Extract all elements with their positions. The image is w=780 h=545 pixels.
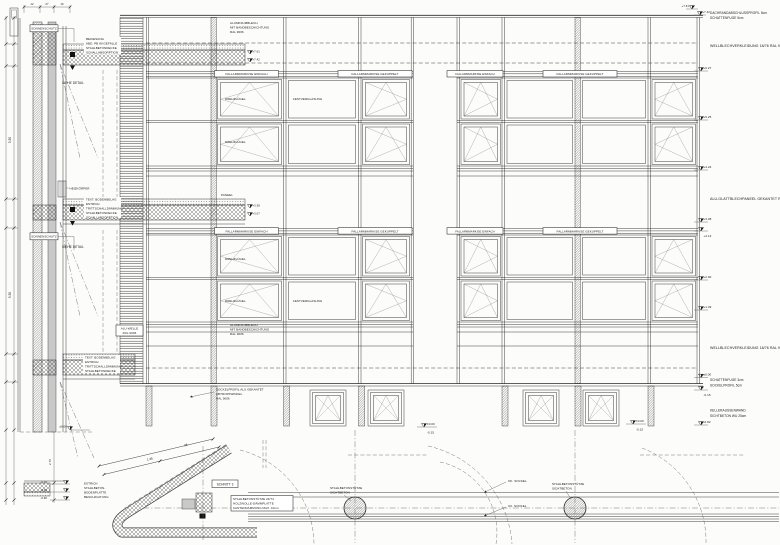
plan-dim-1: 1.35: [146, 456, 153, 461]
dim-storey-1: 3.30: [8, 137, 12, 144]
fixing-symbol: [70, 207, 75, 212]
note-line: ALUMINIUMBLECH: [230, 21, 258, 25]
siehe-detail-1: SIEHE DETAIL: [62, 81, 84, 85]
base-posts: [502, 386, 654, 426]
sill-lines-2: [146, 322, 698, 346]
level-text: -0.15: [636, 428, 643, 432]
level-text: +5.25: [704, 115, 712, 119]
markise-label: FALLARMMARKISE GEKUPPELT: [557, 72, 604, 76]
margin-note: WELLBLECHVERKLEIDUNG 18/76 RAL 9006: [710, 44, 780, 48]
alu-welle-label: ALU-WELLE RAL 9006: [116, 325, 143, 336]
roof-level-1: +7.61: [253, 50, 261, 54]
roof-note: BEKIESUNG ABD. PB IM GEFÄLLE STAHLBETOND…: [84, 37, 121, 55]
level-text: ±0.00: [427, 422, 435, 426]
elevation-right: [457, 18, 699, 427]
note-line: KANTENDÄMMUNG MAX. 10cm: [233, 506, 279, 510]
label-text: STAHLBETONSTÜTZE: [552, 482, 584, 486]
base-posts: [146, 386, 365, 426]
window-plan-symbol: [523, 390, 559, 426]
markise-label: FALLARMMARKISE EINFACH: [455, 229, 494, 233]
level-text: +2.00: [704, 275, 712, 279]
label-text: SONNENSCHUTZ: [31, 235, 57, 239]
note-line: RAL 9006: [216, 397, 230, 401]
note-line: SCHALLABSORPTION: [86, 51, 118, 55]
mid-level-2: +3.07: [253, 212, 261, 216]
basement-note: ESTRICH STAHLBETON- BODENPLATTE BESCHICH…: [84, 482, 109, 500]
uk-label: UK. SOCKEL: [508, 504, 527, 508]
level-text: +3.38: [704, 217, 712, 221]
window-plan-symbol: [583, 390, 619, 426]
markise-label: FALLARMMARKISE EINFACH: [225, 72, 267, 76]
dim-top-1: 12: [30, 2, 34, 6]
markise-label: FALLARMMARKISE EINFACH: [225, 229, 267, 233]
ok-uk-labels: OK. SOCKEL UK. SOCKEL: [484, 479, 527, 516]
festverglasung-label: FESTVERGLASUNG: [293, 299, 323, 303]
note-line: ESTRICH: [86, 202, 100, 206]
dim-storey-2: 3.30: [8, 292, 12, 299]
note-line: ABD. PB IM GEFÄLLE: [86, 42, 117, 46]
level-text: -0.15: [427, 431, 434, 435]
elevation-left: [146, 18, 414, 427]
column-plan-block: [196, 493, 212, 512]
level-text: -0.82: [704, 420, 711, 424]
note-line: TEXT. BODENBELAG: [85, 356, 116, 360]
plan-dim-2: 28: [184, 443, 189, 448]
ok-label: OK. SOCKEL: [508, 479, 527, 483]
level-minus-015: -0.15: [40, 480, 47, 484]
level-minus-090: -0.90: [40, 496, 47, 500]
dim-top-2: 27: [45, 2, 49, 6]
alublech-note-top: ALUMINIUMBLECH MIT BANDBESCHICHTUNG RAL …: [230, 21, 270, 34]
note-line: BEKIESUNG: [86, 37, 105, 41]
shade-swing-lines: [60, 64, 98, 458]
level-zero: ±0.00: [59, 425, 67, 429]
facade-drawing: 3.30 3.30 2.76 12 27 16 HEIZKÖRPER ±0.0: [0, 0, 780, 545]
transom-lines-2: [146, 228, 698, 279]
level-text: +7.61: [682, 4, 690, 8]
note-line: TRITTSCHALLDÄMMUNG: [85, 365, 123, 369]
note-line: STAHLBETON-: [84, 486, 105, 490]
note-line: BODENPLATTE: [84, 491, 106, 495]
markise-label: FALLARMMARKISE GEKUPPELT: [557, 229, 604, 233]
note-line: RAL 9006: [230, 30, 244, 34]
label-text: RAL 9006: [123, 331, 137, 335]
note-line: MIT BANDBESCHICHTUNG: [230, 26, 270, 30]
right-margin: +7.61 +7.42 +6.27 +5.25 +4.24 +3.38 +3.1…: [682, 4, 780, 425]
note-line: MIT BANDBESCHICHTUNG: [230, 328, 270, 332]
siehe-detail-2: SIEHE DETAIL: [62, 245, 84, 249]
note-line: SCHALLABSORPTION: [86, 216, 118, 220]
markise-label: FALLARMMARKISE GEKUPPELT: [352, 72, 399, 76]
alublech-note-bottom: ALUMINIUMBLECH MIT BANDBESCHICHTUNG RAL …: [230, 323, 270, 336]
note-line: ESTRICH: [85, 360, 99, 364]
radiator-label: HEIZKÖRPER: [70, 186, 91, 190]
paneel-label: PANEEL: [221, 193, 233, 197]
label-text: ALU-WELLE: [121, 327, 138, 331]
margin-note: SCHATTENFUGE 3cm: [710, 378, 744, 382]
drehfluegel-label: DREHFLÜGEL: [225, 140, 246, 144]
section-marker-icon: [70, 66, 75, 71]
margin-note: SICHTBETON WU 25cm: [710, 414, 747, 418]
stuetze-note: STAHLBETONSTÜTZE 24/74 HOLZWOLLE-DÄMMPLA…: [231, 496, 293, 512]
note-line: TRITTSCHALLDÄMMUNG: [86, 207, 124, 211]
level-text: -0.15: [704, 393, 711, 397]
sill-lines: [146, 166, 698, 176]
festverglasung-label: FESTVERGLASUNG: [293, 97, 323, 101]
column-symbol: [564, 497, 586, 519]
level-text: +4.24: [704, 165, 712, 169]
drehfluegel-label: DREHFLÜGEL: [225, 257, 246, 261]
dim-top-3: 16: [60, 2, 64, 6]
note-line: ALUMINIUMBLECH: [230, 323, 258, 327]
column-label-2: STAHLBETONSTÜTZE SICHTBETON: [552, 482, 584, 499]
window-tilt-turn: [652, 80, 696, 321]
architectural-drawing-sheet: 3.30 3.30 2.76 12 27 16 HEIZKÖRPER ±0.0: [0, 0, 780, 545]
margin-note: KELLERAUSSENWAND: [710, 409, 746, 413]
reference-arcs: [240, 446, 706, 544]
dim-base: 2.76: [48, 459, 52, 465]
level-text: +6.27: [704, 66, 712, 70]
drehfluegel-label: DREHFLÜGEL: [225, 299, 246, 303]
note-line: STAHLBETONSTÜTZE 24/74: [233, 497, 274, 501]
floor-note: TEXT. BODENBELAG ESTRICH TRITTSCHALLDÄMM…: [84, 197, 124, 220]
note-line: STAHLBETONDECKE: [86, 46, 117, 50]
note-line: RAL 9006: [230, 332, 244, 336]
level-minus-036: -0.36: [40, 488, 47, 492]
window-plan-symbol: [310, 390, 346, 426]
roof-level-2: +7.42: [253, 58, 261, 62]
section-marker-icon: [70, 221, 75, 226]
note-line: STAHLBETONDECKE: [85, 369, 116, 373]
note-line: SOCKELPROFIL ALU GEKANTET: [216, 388, 264, 392]
window-tilt-turn: [461, 80, 501, 321]
margin-note: SOCKELPROFIL 5cm: [710, 384, 742, 388]
markise-label: FALLARMMARKISE GEKUPPELT: [352, 229, 399, 233]
margin-note: ALU-GLATTBLECHPANEEL GEKANTET RAL 9006: [710, 197, 780, 201]
radiator: [58, 181, 69, 197]
label-text: STAHLBETONSTÜTZE: [330, 486, 362, 490]
label-text: SONNENSCHUTZ: [31, 27, 57, 31]
schnitt-label: SCHNITT 3: [217, 482, 234, 486]
level-text: +3.13: [704, 234, 712, 238]
level-text: +1.39: [704, 305, 712, 309]
window-tilt-turn: [363, 80, 410, 321]
note-line: ABTROPFWINKEL: [216, 392, 243, 396]
wall-layers: [10, 8, 117, 458]
margin-note: WELLBLECHVERKLEIDUNG 18/76 RAL 9006: [710, 346, 780, 350]
level-text: ±0.00: [636, 419, 644, 423]
note-line: ESTRICH: [84, 482, 98, 486]
note-line: BESCHICHTUNG: [84, 495, 109, 499]
label-text: SICHTBETON: [552, 487, 572, 491]
fixed-glazing: [289, 81, 356, 320]
markise-label: FALLARMMARKISE EINFACH: [455, 72, 494, 76]
floor-note-2: TEXT. BODENBELAG ESTRICH TRITTSCHALLDÄMM…: [83, 355, 123, 373]
note-line: STAHLBETONDECKE: [86, 211, 117, 215]
margin-note: DACHRANDABSCHLUSSPROFIL 5cm: [710, 11, 767, 15]
wall-section-detail: 3.30 3.30 2.76 12 27 16 HEIZKÖRPER ±0.0: [4, 2, 117, 505]
note-line: HOLZWOLLE-DÄMMPLATTE: [233, 502, 274, 506]
window-plan-symbol: [368, 390, 404, 426]
margin-note: SCHATTENFUGE 5cm: [710, 16, 744, 20]
drehfluegel-label: DREHFLÜGEL: [225, 97, 246, 101]
mid-level-1: +3.38: [253, 204, 261, 208]
level-text: ±0.00: [704, 373, 712, 377]
label-text: SICHTBETON: [330, 491, 350, 495]
note-line: TEXT. BODENBELAG: [86, 198, 117, 202]
plan-view: 1.35 28 SCHNITT 3 STAHLBETONSTÜTZE 24/74…: [98, 430, 779, 544]
sockel-note: SOCKELPROFIL ALU GEKANTET ABTROPFWINKEL …: [190, 388, 264, 401]
fixing-symbol: [70, 52, 75, 57]
plan-corner-detail: 1.35 28 SCHNITT 3 STAHLBETONSTÜTZE 24/74…: [98, 438, 293, 541]
basement-floor-detail: ±0.00 -0.15 -0.36 -0.90 ESTRICH STAHLBET…: [20, 425, 109, 501]
column-symbol: [344, 497, 366, 519]
